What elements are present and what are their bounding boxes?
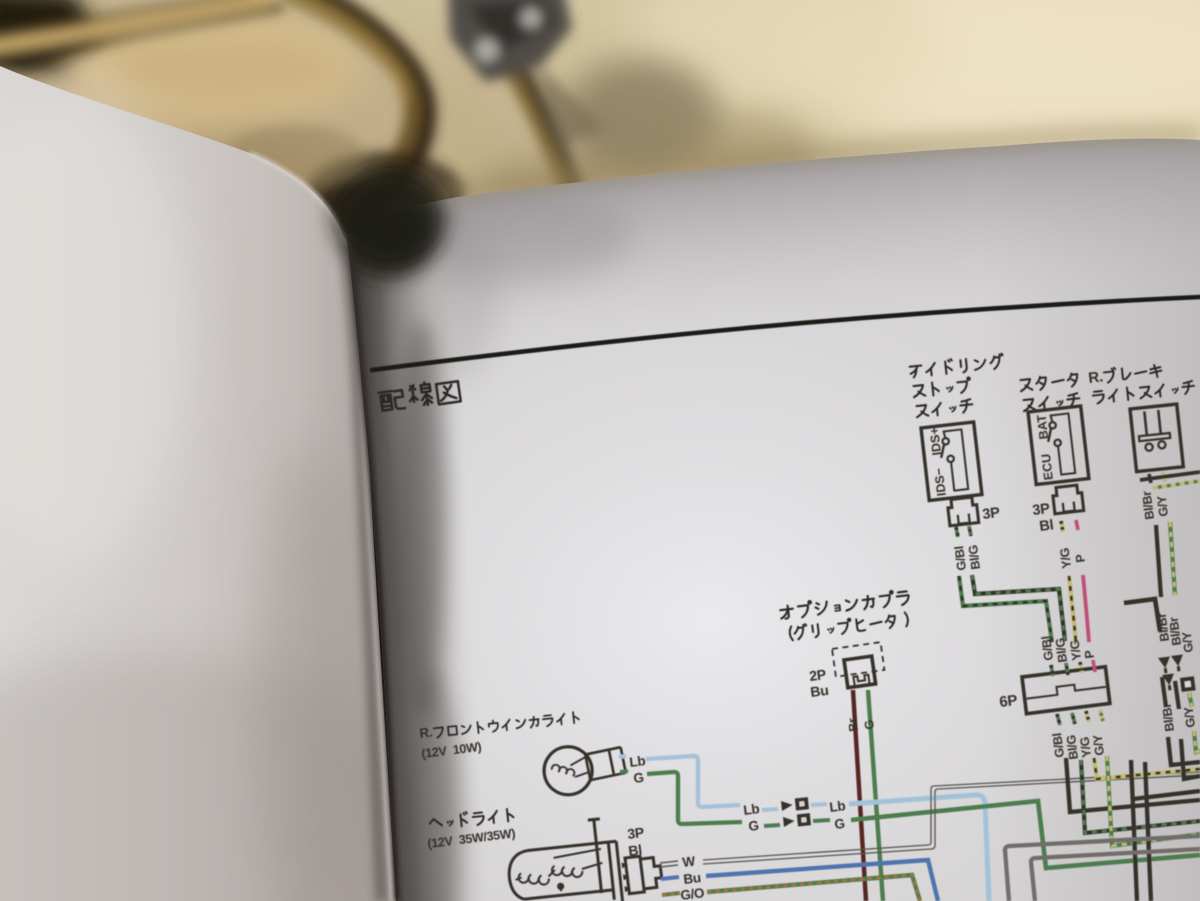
svg-text:Lb: Lb <box>743 801 761 818</box>
svg-text:Lb: Lb <box>629 753 647 770</box>
svg-text:G/Y: G/Y <box>1179 630 1196 653</box>
svg-text:G: G <box>862 719 877 730</box>
svg-text:G/O: G/O <box>680 885 706 901</box>
svg-text:ECU: ECU <box>1039 453 1056 481</box>
svg-text:3P: 3P <box>1032 501 1052 519</box>
svg-text:Bl: Bl <box>1039 517 1055 535</box>
svg-text:G: G <box>633 770 645 786</box>
svg-text:W: W <box>682 854 697 870</box>
svg-text:P: P <box>1073 554 1088 564</box>
svg-text:R.: R. <box>1087 368 1103 387</box>
svg-text:Lb: Lb <box>829 798 847 815</box>
svg-text:2P: 2P <box>808 666 826 684</box>
svg-text:R.: R. <box>419 725 434 741</box>
svg-text:3P: 3P <box>982 505 1002 523</box>
svg-text:Bu: Bu <box>809 682 829 700</box>
svg-text:Br: Br <box>845 717 861 732</box>
svg-text:G/Y: G/Y <box>1090 733 1107 756</box>
svg-text:P: P <box>1082 650 1097 660</box>
svg-text:Bl/G: Bl/G <box>966 544 983 570</box>
svg-text:Y/G: Y/G <box>1058 547 1074 569</box>
svg-text:BAT: BAT <box>1034 414 1051 441</box>
svg-text:G: G <box>748 818 760 834</box>
svg-text:G/Y: G/Y <box>1154 494 1171 517</box>
svg-text:Y/G: Y/G <box>1068 639 1084 661</box>
svg-text:3P: 3P <box>626 824 644 842</box>
svg-text:G: G <box>834 816 846 832</box>
svg-text:Bl: Bl <box>627 841 642 859</box>
svg-text:Bu: Bu <box>683 870 702 887</box>
svg-text:6P: 6P <box>998 692 1018 711</box>
svg-text:G/Y: G/Y <box>1181 705 1198 728</box>
